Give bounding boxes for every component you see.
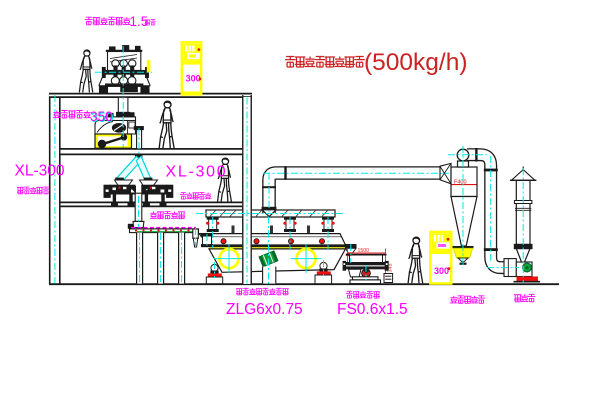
svg-text:ZLG6x0.75: ZLG6x0.75 [226,301,303,318]
svg-text:F400: F400 [454,180,467,186]
svg-text:300: 300 [434,266,449,276]
svg-text:XL-300: XL-300 [15,163,65,180]
svg-text:(500kg/h): (500kg/h) [364,49,468,76]
svg-text:FS0.6x1.5: FS0.6x1.5 [337,301,408,318]
svg-text:300: 300 [186,74,201,84]
svg-text:1500: 1500 [358,248,370,254]
svg-text:1.5: 1.5 [130,14,149,29]
svg-text:XL-300: XL-300 [166,164,228,181]
svg-text:350: 350 [90,109,113,124]
